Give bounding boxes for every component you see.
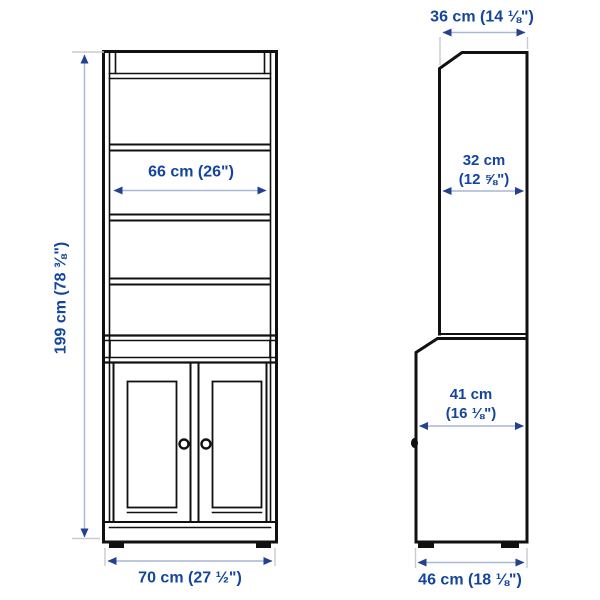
upper-depth-dimension-label: 32 cm (12 ⅝") — [459, 151, 509, 189]
front-right-foot — [256, 542, 271, 548]
base-depth-dimension-label: 46 cm (18 ⅛") — [418, 571, 522, 590]
upper-depth-cm: 32 cm — [459, 151, 509, 170]
shelf-width-dimension-label: 66 cm (26") — [148, 163, 234, 182]
product-dimension-diagram: 199 cm (78 ⅜") 66 cm (26") 70 cm (27 ½")… — [0, 0, 600, 600]
side-view-drawing — [411, 53, 527, 549]
base-depth-dimension-line — [416, 548, 528, 568]
side-door-knob — [411, 438, 418, 448]
width-dimension-label: 70 cm (27 ½") — [138, 569, 242, 588]
furniture-line-art — [0, 0, 600, 600]
cabinet-doors — [114, 363, 267, 523]
side-front-foot — [418, 542, 434, 548]
width-dimension-line — [105, 548, 275, 566]
front-view-drawing — [104, 52, 277, 549]
side-back-foot — [501, 542, 519, 548]
height-dimension-label: 199 cm (78 ⅜") — [52, 242, 71, 355]
right-door-knob — [202, 440, 211, 449]
top-depth-dimension-label: 36 cm (14 ⅛") — [430, 8, 534, 27]
lower-depth-dimension-label: 41 cm (16 ⅛") — [446, 385, 496, 423]
height-dimension-line — [72, 52, 104, 539]
front-left-foot — [109, 542, 124, 548]
lower-depth-inches: (16 ⅛") — [446, 404, 496, 423]
left-door-knob — [180, 440, 189, 449]
upper-depth-inches: (12 ⅝") — [459, 170, 509, 189]
lower-depth-cm: 41 cm — [446, 385, 496, 404]
